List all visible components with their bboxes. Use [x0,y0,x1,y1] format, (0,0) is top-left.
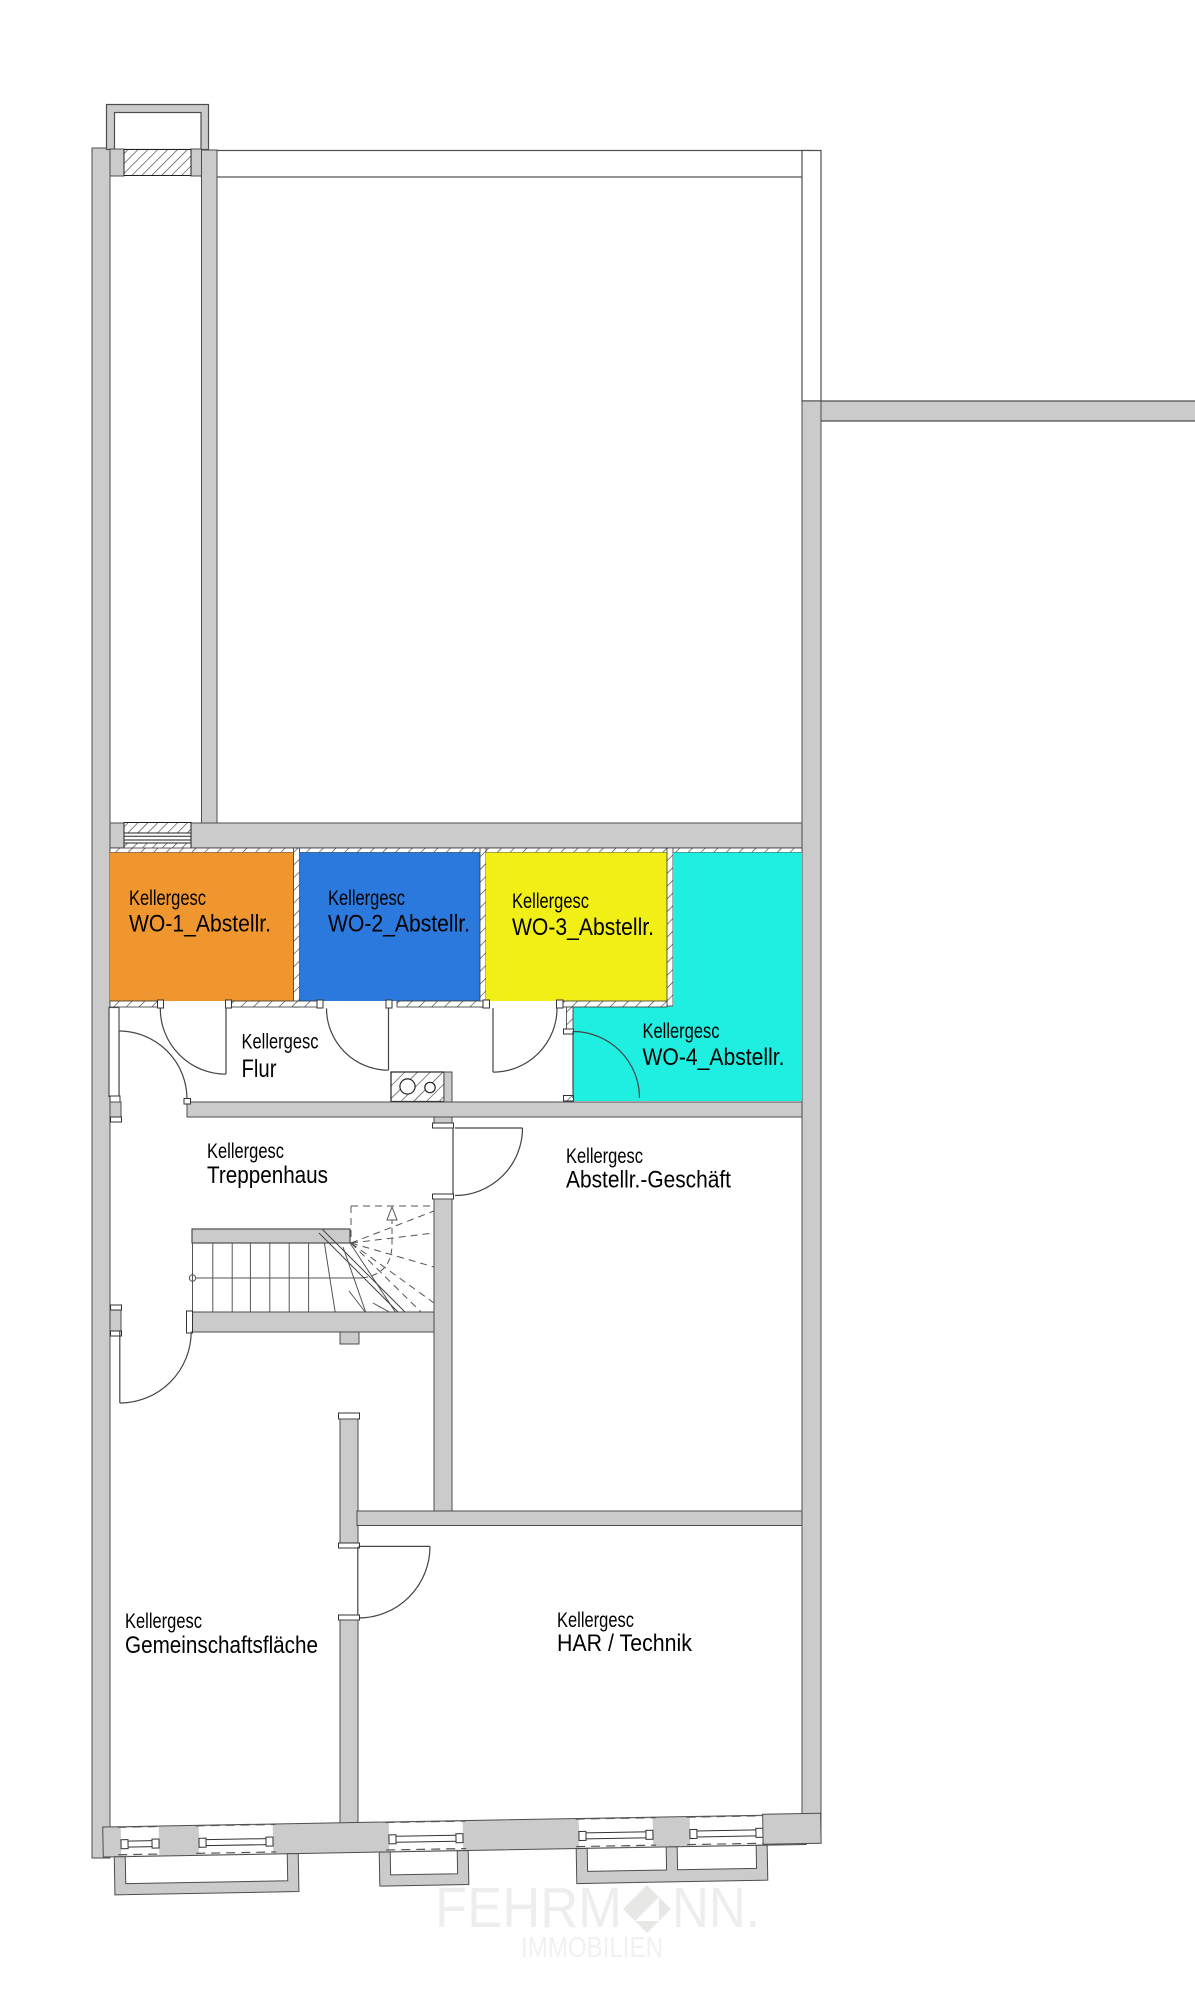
svg-text:Kellergesc: Kellergesc [557,1609,634,1632]
svg-text:Kellergesc: Kellergesc [328,887,405,910]
svg-text:HAR / Technik: HAR / Technik [557,1630,693,1657]
svg-text:Flur: Flur [242,1055,277,1083]
svg-text:WO-3_Abstellr.: WO-3_Abstellr. [512,914,654,941]
svg-text:WO-1_Abstellr.: WO-1_Abstellr. [129,911,271,938]
svg-text:NN.: NN. [672,1876,760,1940]
svg-text:Abstellr.-Geschäft: Abstellr.-Geschäft [566,1167,731,1194]
svg-text:Kellergesc: Kellergesc [643,1020,720,1043]
svg-text:Treppenhaus: Treppenhaus [207,1162,328,1189]
svg-text:Gemeinschaftsfläche: Gemeinschaftsfläche [125,1632,318,1659]
svg-text:Kellergesc: Kellergesc [242,1031,319,1054]
svg-text:Kellergesc: Kellergesc [566,1145,643,1168]
svg-text:IMMOBILIEN: IMMOBILIEN [521,1932,663,1964]
svg-text:WO-4_Abstellr.: WO-4_Abstellr. [643,1044,785,1071]
svg-text:Kellergesc: Kellergesc [129,887,206,910]
svg-text:WO-2_Abstellr.: WO-2_Abstellr. [328,911,470,938]
svg-text:Kellergesc: Kellergesc [125,1610,202,1633]
svg-text:Kellergesc: Kellergesc [512,890,589,913]
svg-text:FEHRM: FEHRM [435,1876,622,1940]
svg-text:Kellergesc: Kellergesc [207,1140,284,1163]
